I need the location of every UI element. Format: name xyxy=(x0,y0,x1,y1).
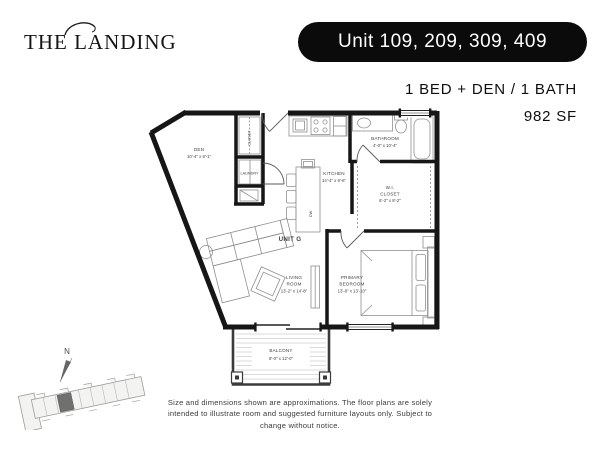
primary-bedroom-label-2: BEDROOM xyxy=(339,282,364,287)
compass-arrow-icon xyxy=(60,360,71,382)
bathroom-label: BATHROOM xyxy=(371,136,399,141)
wi-closet-label-1: W.I. xyxy=(386,185,395,190)
living-room-label-1: LIVING xyxy=(286,275,302,280)
den-label: DEN xyxy=(194,147,204,152)
logo-bird-swoosh-icon xyxy=(62,19,102,41)
brand-logo: THE LANDING xyxy=(24,30,174,64)
kitchen-dims: 14'-4" x 9'-6" xyxy=(322,178,347,183)
disclaimer-line-1: Size and dimensions shown are approximat… xyxy=(145,397,455,408)
balcony-dims: 8'-0" x 12'-0" xyxy=(269,356,294,361)
unit-label: UNIT G xyxy=(279,236,302,243)
bathroom-dims: 4'-0" x 10'-4" xyxy=(373,143,398,148)
area-line: 982 SF xyxy=(524,108,577,125)
wi-closet-label-2: CLOSET xyxy=(380,192,400,197)
bed-bath-line: 1 BED + DEN / 1 BATH xyxy=(405,81,577,98)
floor-plan: DEN 10'-4" x 8'-1" CLOSET LAUNDRY KITCHE… xyxy=(140,100,450,400)
compass-north-label: N xyxy=(64,347,70,356)
dishwasher-label: DW xyxy=(309,210,313,217)
interior-walls xyxy=(234,111,437,327)
living-room-label-2: ROOM xyxy=(286,282,301,287)
balcony-posts xyxy=(232,372,331,383)
den-dims: 10'-4" x 8'-1" xyxy=(187,154,212,159)
kitchen-label: KITCHEN xyxy=(323,171,345,176)
compass: N xyxy=(60,347,72,382)
laundry-label: LAUNDRY xyxy=(240,172,259,176)
disclaimer: Size and dimensions shown are approximat… xyxy=(145,397,455,431)
bedroom-furniture xyxy=(361,237,435,326)
balcony-label: BALCONY xyxy=(269,348,292,353)
unit-banner-text: Unit 109, 209, 309, 409 xyxy=(338,31,547,53)
closet-laundry-fixtures xyxy=(239,117,261,201)
site-keyplan: N xyxy=(18,342,158,430)
disclaimer-line-3: change without notice. xyxy=(145,420,455,431)
disclaimer-line-2: intended to illustrate room and suggeste… xyxy=(145,408,455,419)
living-room-dims: 13'-2" x 14'-8" xyxy=(281,289,308,294)
closet-label: CLOSET xyxy=(248,130,252,146)
primary-bedroom-dims: 13'-8" x 13'-10" xyxy=(338,289,367,294)
floorplan-flyer: THE LANDING Unit 109, 209, 309, 409 1 BE… xyxy=(0,0,600,463)
wi-closet-dims: 6'-2" x 8'-2" xyxy=(379,198,401,203)
building-footprint xyxy=(18,371,147,430)
unit-banner: Unit 109, 209, 309, 409 xyxy=(298,22,587,62)
primary-bedroom-label-1: PRIMARY xyxy=(341,275,363,280)
